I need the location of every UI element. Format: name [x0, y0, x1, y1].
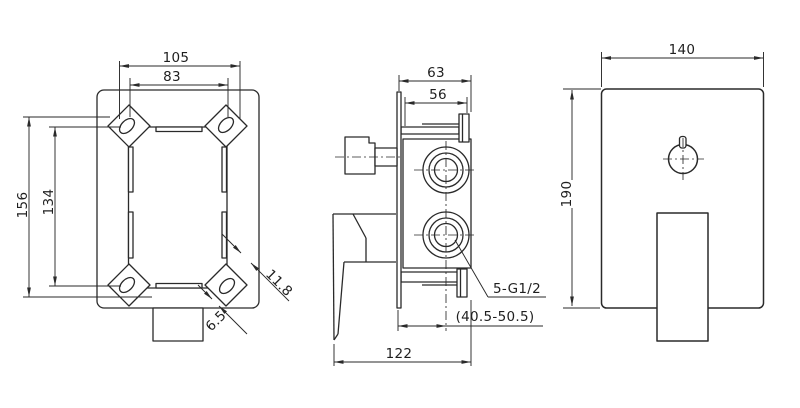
dim-56-label: 56	[429, 87, 447, 103]
drawing-canvas: 105 83 156 134 11.8 6.5	[0, 0, 800, 408]
top-outlet-flange	[459, 114, 469, 142]
dim-140-label: 140	[669, 42, 696, 58]
thread-callout-label: 5-G1/2	[493, 281, 541, 297]
bottom-outlet-pipe	[401, 272, 459, 282]
dim-83-label: 83	[163, 69, 181, 85]
dim-122-label: 122	[386, 346, 413, 362]
bottom-outlet-flange	[457, 269, 467, 297]
technical-drawing: 105 83 156 134 11.8 6.5	[0, 0, 800, 408]
dim-wall-range-label: (40.5-50.5)	[456, 309, 535, 325]
side-view: 63 56 5-G1/2 (40.5-50.5) 122	[333, 65, 546, 366]
dim-63-label: 63	[427, 65, 445, 81]
lever-handle-side	[333, 214, 396, 340]
diverter-knob-side	[345, 137, 375, 174]
dim-11-8-label: 11.8	[262, 266, 295, 299]
back-view: 105 83 156 134 11.8 6.5	[15, 50, 296, 341]
dim-134-label: 134	[41, 189, 57, 216]
dim-190-label: 190	[559, 181, 575, 208]
wall-plate-edge	[397, 92, 401, 308]
dim-105-label: 105	[163, 50, 190, 66]
lever-handle-front	[657, 213, 708, 341]
dim-156-label: 156	[15, 192, 31, 219]
handle-base-back	[153, 308, 203, 341]
top-outlet-pipe	[401, 127, 459, 134]
front-view: 140 190	[559, 42, 764, 341]
dim-6-5-label: 6.5	[203, 308, 230, 335]
